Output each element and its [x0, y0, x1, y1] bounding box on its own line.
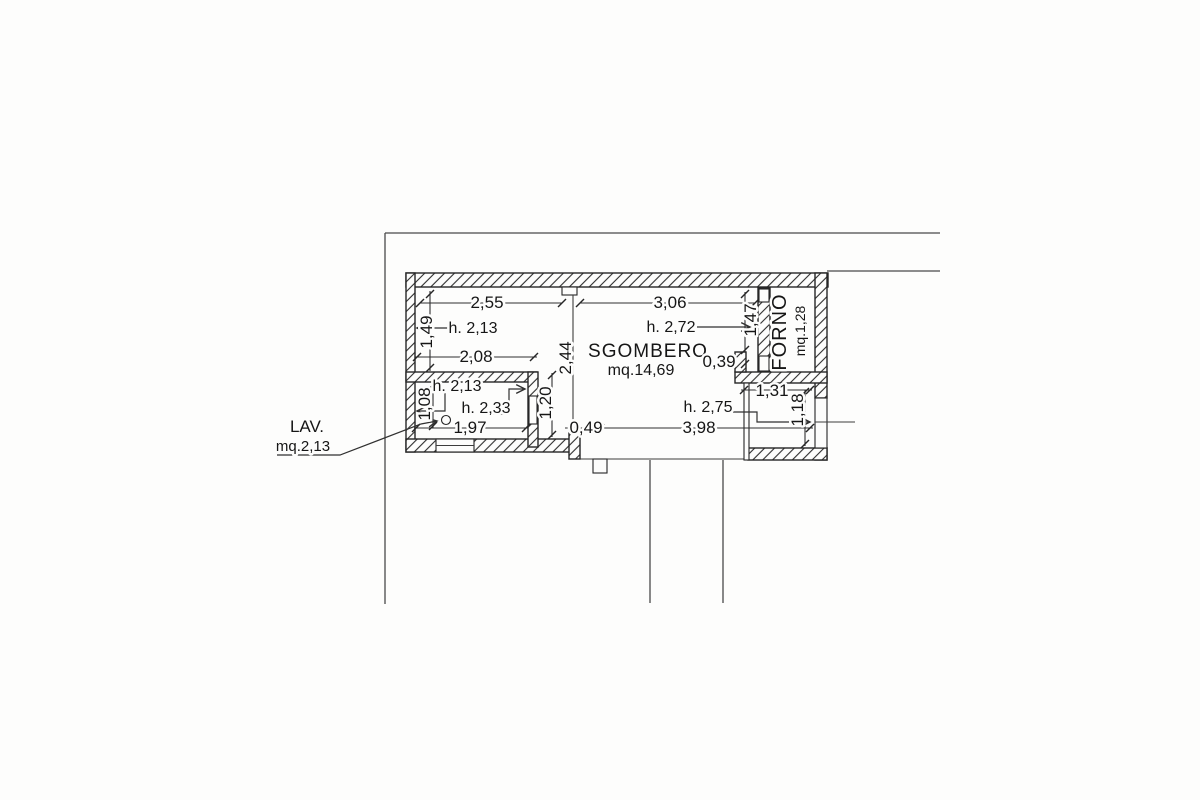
dim-244: 2,44	[556, 341, 575, 374]
wall-top	[406, 273, 828, 287]
chimney-notch-top	[562, 287, 577, 295]
height-label-left-room: h. 2,13	[449, 320, 498, 337]
dim-197: 1,97	[453, 418, 486, 437]
window-right-wall	[815, 398, 827, 448]
labels: SGOMBERO mq.14,69 FORNO mq.1,28 LAV. mq.…	[276, 293, 808, 455]
dim-120: 1,20	[536, 386, 555, 419]
room-area-sgombero: mq.14,69	[608, 362, 675, 379]
dim-208: 2,08	[459, 347, 492, 366]
wall-bottom-right	[748, 448, 827, 460]
wall-bottom-left	[406, 439, 575, 452]
dim-149: 1,49	[417, 315, 436, 348]
niche-left-partition	[744, 383, 749, 460]
height-label-sgombero: h. 2,72	[647, 319, 696, 336]
step-bottom	[593, 459, 607, 473]
height-label-niche: h. 2,75	[684, 399, 733, 416]
forno-door-jamb-top	[759, 289, 769, 302]
dim-255: 2,55	[470, 293, 503, 312]
floor-plan-drawing: SGOMBERO mq.14,69 FORNO mq.1,28 LAV. mq.…	[0, 0, 1200, 800]
scanned-floor-plan-page: SGOMBERO mq.14,69 FORNO mq.1,28 LAV. mq.…	[0, 0, 1200, 800]
room-label-forno: FORNO	[769, 293, 791, 370]
dim-147: 1,47	[741, 303, 760, 336]
dim-039: 0,39	[702, 352, 735, 371]
wall-left	[406, 273, 415, 452]
room-area-forno: mq.1,28	[792, 305, 808, 356]
room-label-lav: LAV.	[290, 417, 324, 436]
room-area-lav: mq.2,13	[276, 438, 330, 455]
lav-fixture-symbol	[442, 416, 451, 425]
dim-131: 1,31	[755, 381, 788, 400]
height-label-lav-inner: h. 2,33	[462, 400, 511, 417]
dim-118: 1,18	[788, 393, 807, 426]
height-label-lav-top: h. 2,13	[433, 378, 482, 395]
dim-049: 0,49	[569, 418, 602, 437]
dim-398: 3,98	[682, 418, 715, 437]
wall-stub-039	[735, 352, 746, 372]
dim-108: 1,08	[415, 387, 434, 420]
forno-door-jamb-bottom	[759, 356, 769, 371]
room-label-sgombero: SGOMBERO	[588, 341, 708, 362]
dim-306: 3,06	[653, 293, 686, 312]
